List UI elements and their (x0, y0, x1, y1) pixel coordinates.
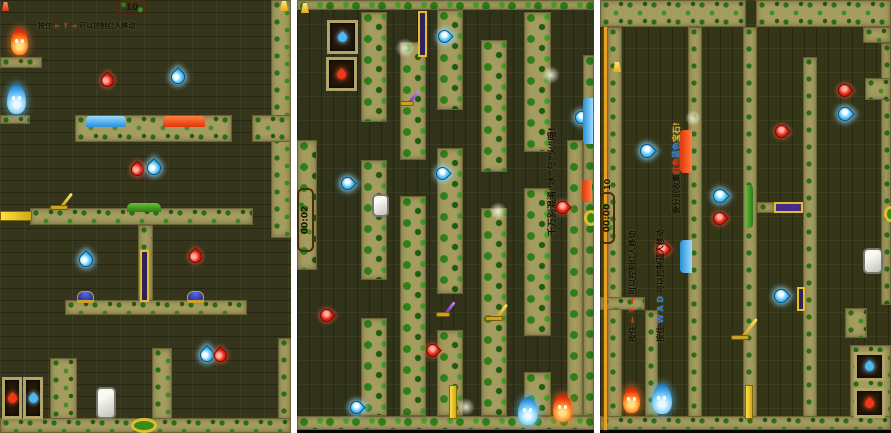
instruction-segment: 按住 (656, 323, 665, 342)
pushable-rock (96, 387, 116, 419)
game-panel-level-c[interactable]: 00:0010按住 ← ↑ → 可以控制红人移动按住 W A D 可以控制蓝人移… (600, 0, 891, 433)
lava-pool (163, 116, 205, 127)
exit-door-water (23, 377, 43, 419)
timer-text: 00:00 (603, 204, 613, 233)
maze-wall (297, 0, 594, 10)
maze-wall (567, 140, 583, 416)
maze-wall (252, 115, 291, 142)
moving-platform (745, 385, 753, 419)
red-gem (98, 71, 116, 89)
grass-pool (127, 203, 161, 212)
lever-base (400, 101, 414, 106)
blue-gem (835, 104, 855, 124)
timer-sign: 00:00 (600, 192, 615, 244)
fire-symbol-icon (863, 397, 876, 410)
grass-pool (745, 185, 753, 228)
maze-wall (361, 160, 387, 280)
timer-sign: 00:02 (297, 188, 314, 252)
exit-door-fire (326, 57, 357, 91)
light-glow (457, 398, 475, 416)
instruction-segment: 红色 (672, 158, 681, 174)
pushable-rock (372, 194, 389, 217)
gold-lever (731, 318, 749, 340)
red-gem (186, 247, 204, 265)
screenshot-root: 10按住 ← ↑ → 可以控制红人移动 00:02千万别混淆“冰”与“火”哦! … (0, 0, 891, 433)
red-gem (835, 81, 853, 99)
exit-door-fire (2, 377, 22, 419)
lever-base (731, 335, 749, 340)
instruction-segment: 可以控制红人移动 (77, 22, 135, 30)
maze-wall (688, 27, 702, 418)
pressure-button (187, 291, 204, 301)
water-pool (86, 116, 126, 127)
blue-gem (771, 286, 791, 306)
pushable-rock (863, 248, 883, 274)
game-panel-level-b[interactable]: 00:02千万别混淆“冰”与“火”哦! (297, 0, 594, 433)
blue-gem (168, 67, 188, 87)
light-glow (685, 110, 701, 126)
light-glow (395, 38, 415, 58)
red-gem (128, 160, 146, 178)
maze-wall (297, 416, 594, 430)
instruction-segment: 按住 (628, 323, 637, 342)
portal-ring (584, 210, 594, 226)
maze-wall (756, 0, 891, 27)
maze-wall (865, 78, 891, 100)
fire-symbol-icon (335, 68, 348, 81)
red-gem (772, 122, 790, 140)
exit-door-water (327, 20, 358, 54)
water-pool (583, 98, 593, 144)
maze-wall (361, 12, 387, 122)
lever-base (436, 312, 450, 317)
instruction-segment: 宝石! (672, 122, 681, 142)
watergirl-character (7, 84, 26, 114)
purple-lever (436, 303, 450, 317)
elevator-track (797, 287, 805, 311)
moving-platform (774, 202, 803, 213)
lever-base (50, 205, 68, 210)
fire-symbol-icon (6, 392, 19, 405)
timer-text: 00:02 (301, 206, 311, 235)
instruction-segment: ← ↑ → (628, 298, 637, 324)
purple-lever (400, 92, 414, 106)
instruction-segment: W A D (656, 296, 665, 323)
maze-wall (0, 115, 30, 124)
light-glow (489, 202, 507, 220)
instruction-segment: 可以控制红人移动 (628, 231, 637, 298)
lava-pool (582, 180, 592, 202)
red-gem (710, 209, 728, 227)
maze-wall (437, 10, 463, 110)
exit-door-fire (854, 388, 885, 418)
pressure-button (77, 291, 94, 301)
blue-gem (637, 141, 657, 161)
portal-ring (131, 418, 157, 433)
blue-gem (338, 174, 356, 192)
maze-wall (845, 308, 867, 338)
portal-ring (884, 206, 891, 222)
instruction-segment: 千万别混淆“冰”与“火”哦! (548, 127, 558, 236)
maze-wall (863, 27, 891, 43)
maze-wall (0, 57, 42, 68)
red-gem (317, 306, 335, 324)
maze-wall (278, 338, 291, 420)
water-symbol-icon (27, 392, 40, 405)
instruction-text: 千万别混淆“冰”与“火”哦! (545, 127, 558, 236)
maze-wall (757, 202, 775, 213)
instruction-segment: 要分别收集 (672, 174, 681, 214)
level-sign-text: 10 (126, 3, 139, 13)
lever-base (485, 316, 503, 321)
maze-wall (152, 348, 172, 420)
blue-gem (144, 158, 164, 178)
maze-wall (803, 57, 817, 418)
gold-lever (50, 194, 68, 210)
instruction-segment: ← ↑ → (54, 22, 76, 30)
elevator-track (418, 11, 427, 57)
water-pool (680, 240, 692, 273)
maze-wall (50, 358, 77, 420)
gold-lever (485, 305, 503, 321)
blue-gem (710, 186, 730, 206)
instruction-text: 按住 ← ↑ → 可以控制红人移动 (627, 231, 638, 342)
fireboy-character (623, 387, 640, 413)
fireboy-character (11, 28, 28, 55)
light-glow (542, 66, 560, 84)
watergirl-character (652, 384, 672, 414)
level-sign: 10 (116, 0, 148, 15)
instruction-segment: 可以控制蓝人移动 (656, 229, 665, 296)
lantern-icon (2, 2, 9, 11)
water-symbol-icon (336, 31, 349, 44)
instruction-text: 按住 ← ↑ → 可以控制红人移动 (38, 21, 135, 31)
moving-platform (0, 211, 32, 221)
blue-gem (76, 250, 96, 270)
instruction-text: 要分别收集红色蓝色宝石! (671, 122, 682, 214)
maze-wall (361, 318, 387, 416)
watergirl-character (518, 397, 538, 425)
fireboy-character (553, 394, 572, 422)
red-gem (211, 346, 229, 364)
maze-wall (65, 300, 247, 315)
instruction-segment: 按住 (38, 22, 54, 30)
game-panel-level-a[interactable]: 10按住 ← ↑ → 可以控制红人移动 (0, 0, 291, 433)
instruction-segment: 蓝色 (672, 142, 681, 158)
maze-wall (600, 0, 746, 27)
score-text: 10 (603, 179, 612, 190)
instruction-text: 按住 W A D 可以控制蓝人移动 (655, 229, 666, 342)
score-label: 10 (603, 180, 615, 190)
elevator-track (140, 250, 149, 302)
maze-wall (400, 196, 426, 416)
moving-platform (449, 385, 457, 419)
water-symbol-icon (863, 360, 876, 373)
maze-wall (481, 40, 507, 172)
exit-door-water (854, 352, 885, 381)
